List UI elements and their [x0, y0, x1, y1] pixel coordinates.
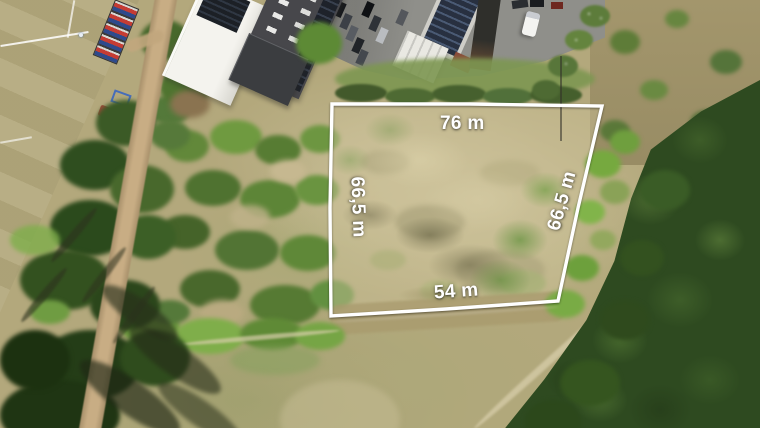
plot-boundary: [0, 0, 760, 428]
dimension-label-top: 76 m: [440, 113, 485, 135]
aerial-photo: 76 m 66,5 m 66,5 m 54 m: [0, 0, 760, 428]
dimension-label-left: 66,5 m: [345, 176, 369, 238]
dimension-label-bottom: 54 m: [433, 279, 479, 304]
